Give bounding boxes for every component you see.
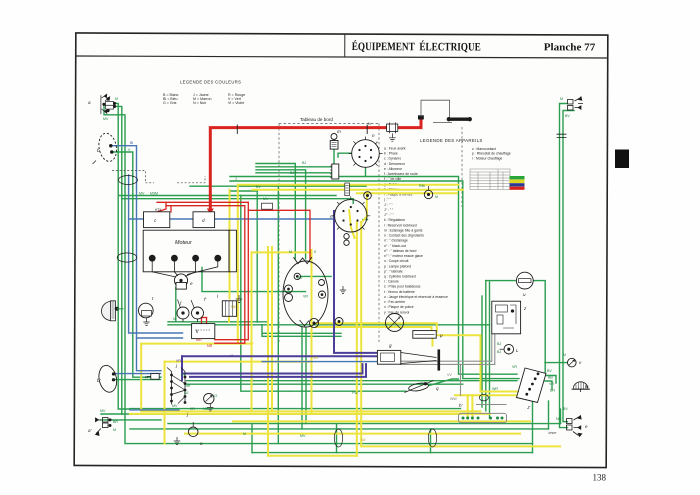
svg-text:138: 138 [593,473,607,483]
svg-text:a: a [88,100,91,105]
svg-text:M: M [115,97,118,101]
svg-text:MV: MV [300,434,306,438]
svg-text:d : Démarreur: d : Démarreur [384,162,406,166]
svg-text:NB: NB [231,305,236,309]
svg-text:NB: NB [203,407,209,411]
svg-text:L: L [516,348,519,353]
svg-text:u: u [523,292,526,297]
svg-text:BJ: BJ [497,350,501,354]
svg-text:LEGENDE DES COULEURS: LEGENDE DES COULEURS [180,80,241,85]
svg-text:M: M [173,317,176,321]
svg-text:NB: NB [556,417,562,421]
svg-text:e: e [190,281,193,286]
svg-text:p : Rhéostat de chauffage: p : Rhéostat de chauffage [472,152,511,156]
svg-text:o: o [200,441,203,446]
svg-text:J: J [235,177,237,181]
svg-text:N: N [368,122,371,126]
svg-text:MR: MR [196,338,202,342]
svg-text:BV: BV [181,373,186,377]
svg-text:p: p [439,333,443,338]
svg-text:VR: VR [512,365,517,369]
svg-text:s : Prise pour baladeuse: s : Prise pour baladeuse [384,285,421,289]
svg-text:f : Avertisseur de route: f : Avertisseur de route [384,172,418,176]
svg-text:MV: MV [297,276,303,280]
svg-text:NJ: NJ [184,391,189,395]
svg-text:NR: NR [207,344,213,348]
svg-text:v : Feu arrière: v : Feu arrière [384,300,405,304]
svg-text:J''' : " ": J''' : " " [384,213,395,217]
svg-text:g: g [389,343,392,348]
svg-text:t : Verrou de batterie: t : Verrou de batterie [384,290,415,294]
svg-text:J': J' [526,405,530,410]
svg-text:HT3: HT3 [155,208,161,212]
svg-text:x : Plaque de police: x : Plaque de police [384,305,414,309]
svg-text:n' : " d'éclairage: n' : " d'éclairage [384,239,408,243]
svg-text:n : Contact des clignotants: n : Contact des clignotants [384,234,424,238]
svg-text:f': f' [204,297,206,302]
svg-text:VR: VR [303,295,308,299]
svg-text:M: M [243,432,246,436]
svg-text:n': n' [330,214,334,219]
svg-text:n'''': " moteur essuie: n'''': " moteur essuie glace [384,254,423,258]
svg-text:BJ: BJ [497,342,501,346]
svg-text:Planche 77: Planche 77 [544,42,596,53]
svg-text:l : Réservoir lockheed: l : Réservoir lockheed [384,223,417,227]
svg-text:h': h' [459,403,463,408]
svg-text:q : Cylindre lockheed: q : Cylindre lockheed [384,275,416,279]
svg-text:NJ: NJ [361,438,366,442]
svg-text:Bl: Bl [130,141,133,145]
svg-text:NR: NR [185,384,191,388]
svg-text:V2: V2 [213,394,217,398]
svg-text:c : Dynamo: c : Dynamo [384,157,401,161]
svg-text:KR: KR [190,407,195,411]
svg-text:z : Manocontact: z : Manocontact [472,147,496,151]
svg-text:FW: FW [352,391,358,395]
svg-text:e: e [585,424,588,429]
svg-text:LEGENDE DES APPAREILS: LEGENDE DES APPAREILS [420,138,483,143]
svg-text:WW: WW [450,397,457,401]
svg-text:ÉQUIPEMENT ÉLECTRIQUE: ÉQUIPEMENT ÉLECTRIQUE [352,39,481,53]
svg-text:Tableau de bord: Tableau de bord [300,117,333,122]
svg-text:u : Jauge électrique et réser: u : Jauge électrique et réservoir à esse… [384,295,448,299]
svg-text:47997: 47997 [548,431,557,435]
svg-text:m: m [337,129,341,134]
svg-text:MV: MV [263,197,269,201]
svg-text:VR: VR [176,359,181,363]
svg-text:q: q [436,386,439,391]
svg-text:a': a' [88,428,92,433]
svg-text:b': b' [97,378,101,383]
svg-text:p : Lampe plafond: p : Lampe plafond [384,264,411,268]
svg-text:m : Eclairage bîte à gants: m : Eclairage bîte à gants [384,228,423,232]
svg-text:BR: BR [550,389,555,393]
svg-text:M: M [289,250,292,254]
svg-text:J' : " ": J' : " " [384,203,393,207]
svg-text:Moteur: Moteur [175,240,192,246]
svg-text:n''' : " tableau de bo: n''' : " tableau de bord [384,249,416,253]
svg-text:VV: VV [447,373,452,377]
svg-text:RBi: RBi [419,184,425,188]
svg-text:M3M: M3M [150,192,158,196]
svg-text:b : Phare: b : Phare [384,152,398,156]
svg-text:BJ: BJ [302,161,306,165]
svg-text:n'' : " black-out: n'' : " black-out [384,244,406,248]
svg-text:MV: MV [100,409,106,413]
svg-text:r : Canule: r : Canule [384,280,399,284]
svg-text:MV: MV [103,117,109,121]
svg-text:BV: BV [256,185,261,189]
svg-text:MV: MV [139,192,145,196]
svg-text:BV: BV [563,407,568,411]
svg-text:e : Allumeur: e : Allumeur [384,167,403,171]
svg-text:j : " ": j : " " [383,198,392,202]
svg-text:MV: MV [172,404,178,408]
svg-text:J: J [240,197,242,201]
svg-text:VR: VR [549,382,554,386]
svg-text:N = Noir: N = Noir [193,101,207,105]
svg-text:o : Coupe circuit: o : Coupe circuit [384,259,409,263]
svg-text:Vi: Vi [230,354,233,358]
svg-text:BR: BR [113,420,118,424]
svg-text:p' : " latérale: p' : " latérale [384,269,403,273]
svg-text:b: b [97,148,100,153]
svg-text:BV: BV [565,114,570,118]
svg-text:d: d [202,218,205,223]
svg-text:k : Régulateur: k : Régulateur [384,218,406,222]
svg-text:Vi = Violet: Vi = Violet [228,101,244,105]
svg-text:M: M [563,353,566,357]
svg-text:BV: BV [547,369,552,373]
svg-text:n: n [372,133,375,138]
svg-text:BB: BB [548,376,553,380]
svg-text:WR: WR [492,387,498,391]
svg-text:G = Gris: G = Gris [163,101,177,105]
svg-text:J'' : " ": J'' : " " [384,208,394,212]
svg-text:H: H [145,376,148,380]
svg-text:M: M [435,195,438,199]
svg-text:M: M [113,428,116,432]
svg-text:r : Moteur chauffage: r : Moteur chauffage [472,157,502,161]
svg-text:BJV: BJV [290,171,297,175]
svg-text:M: M [560,97,563,101]
svg-text:VR: VR [313,356,318,360]
svg-text:a : Feux avant: a : Feux avant [384,147,406,151]
